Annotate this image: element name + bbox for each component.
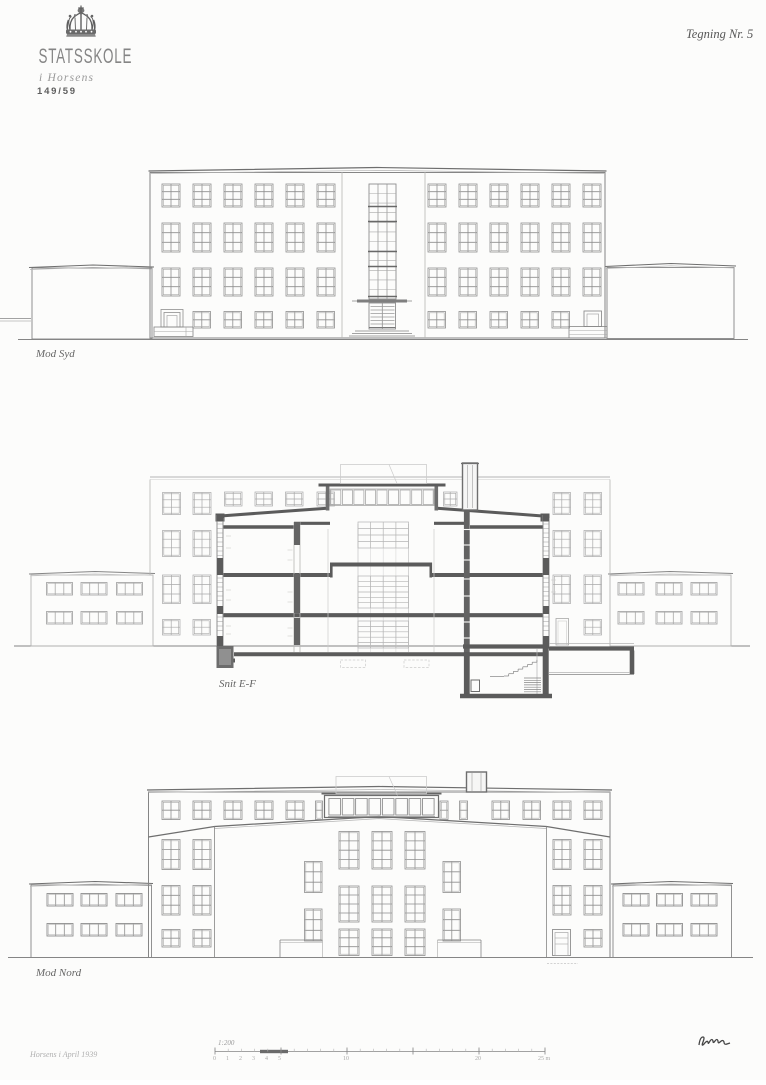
svg-text:STATSSKOLE: STATSSKOLE — [39, 44, 133, 68]
svg-text:Horsens i April 1939: Horsens i April 1939 — [29, 1050, 97, 1059]
svg-text:0: 0 — [213, 1056, 216, 1062]
svg-text:1:200: 1:200 — [218, 1039, 235, 1047]
svg-text:3: 3 — [252, 1056, 255, 1062]
svg-text:Mod Syd: Mod Syd — [35, 348, 75, 360]
svg-text:Mod Nord: Mod Nord — [35, 967, 82, 979]
svg-text:25 m: 25 m — [538, 1056, 551, 1062]
svg-text:5: 5 — [278, 1056, 281, 1062]
svg-text:i Horsens: i Horsens — [39, 72, 94, 84]
svg-text:149/59: 149/59 — [37, 86, 77, 97]
svg-text:4: 4 — [265, 1056, 268, 1062]
svg-text:20: 20 — [475, 1056, 481, 1062]
svg-text:10: 10 — [343, 1056, 349, 1062]
svg-text:2: 2 — [239, 1056, 242, 1062]
svg-text:Snit E-F: Snit E-F — [219, 678, 256, 690]
svg-text:Tegning Nr. 5: Tegning Nr. 5 — [686, 27, 753, 41]
svg-text:1: 1 — [226, 1056, 229, 1062]
